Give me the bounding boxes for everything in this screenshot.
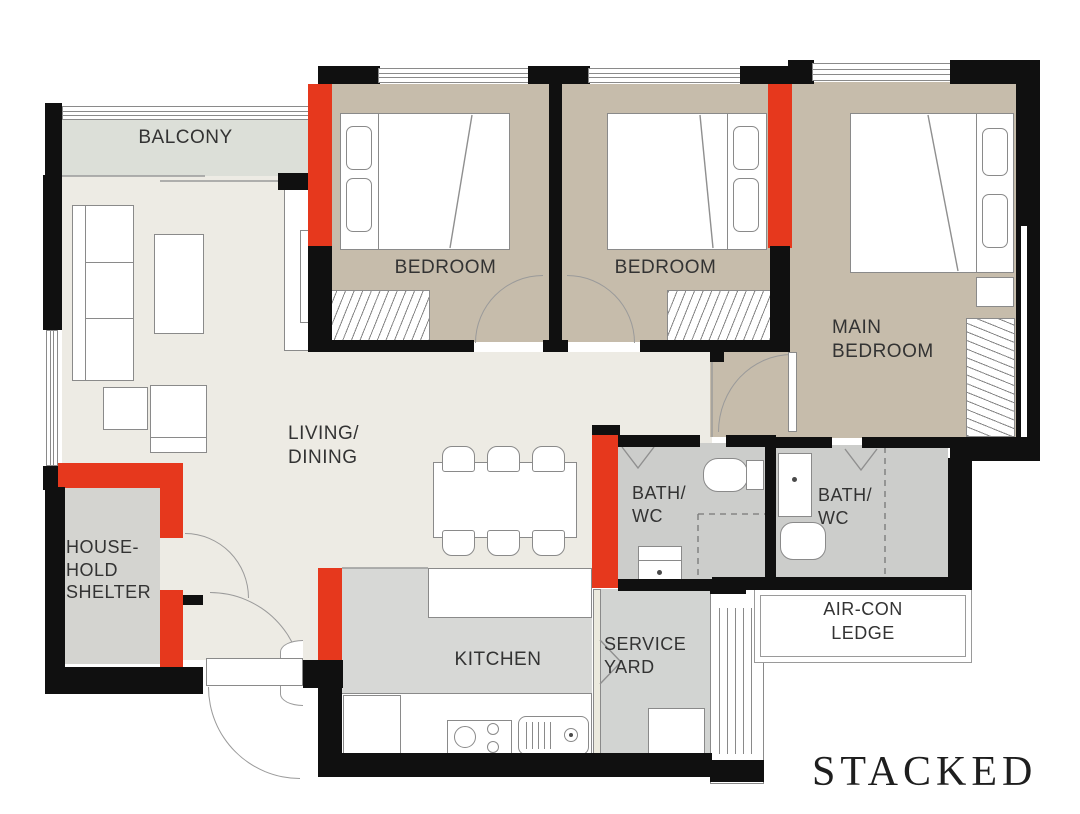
window [378,68,530,83]
wall-segment [528,66,590,84]
label-balcony: BALCONY [118,126,253,150]
pillow [346,126,372,170]
bed-mattress [850,113,978,273]
door-leaf-entrance [206,658,303,686]
pillow [733,178,759,232]
wall-segment [788,60,814,84]
stove-burner [487,723,499,735]
label-line: WC [632,505,686,528]
wardrobe [667,290,785,342]
label-line: MAIN [832,316,934,340]
stacked-logo: STACKED [812,748,1037,796]
wall-segment [308,246,332,352]
window [812,63,952,81]
wall-segment [618,579,714,591]
label-line: SERVICE [604,633,686,656]
label-bedroom-1: BEDROOM [378,256,513,280]
wall-segment [45,103,62,183]
wall-segment [303,660,343,688]
sofa-cushion-line [86,318,133,319]
label-main-bedroom: MAIN BEDROOM [832,316,934,365]
window-slit [1021,226,1027,438]
basin-tap-dot [792,477,797,482]
wardrobe [966,318,1015,437]
wall-segment [740,66,790,84]
wall-segment [710,760,764,782]
pillow [346,178,372,232]
label-bath-2: BATH/ WC [818,484,872,530]
window [46,330,58,466]
dining-table [433,462,577,538]
wall-segment [318,340,474,352]
label-line: WC [818,507,872,530]
washing-machine [648,708,705,755]
label-service-yard: SERVICE YARD [604,633,686,679]
label-line: HOLD [66,559,151,582]
kitchen-service-partition [593,589,601,754]
wardrobe [318,290,430,342]
kitchen-island-counter [428,568,592,618]
stove-burner [487,741,499,753]
wall-segment [43,175,62,330]
label-line: AIR-CON [754,597,972,621]
side-table [103,387,148,430]
pillow [982,128,1008,176]
floor-plan: BALCONY BEDROOM BEDROOM MAIN BEDROOM LIV… [0,0,1080,814]
label-line: BATH/ [818,484,872,507]
dining-chair [532,446,565,472]
window [588,68,742,83]
stove-burner [454,726,476,748]
label-bath-1: BATH/ WC [632,482,686,528]
reinforced-wall-red [308,84,332,248]
reinforced-wall-red [160,590,183,668]
wall-segment [318,753,712,777]
wall-segment [948,458,972,590]
bed-mattress [378,113,510,250]
dining-chair [487,446,520,472]
wall-segment [765,437,776,583]
fridge [343,695,401,754]
door-swing-arc-entrance-outer [208,687,300,779]
label-line: LEDGE [754,621,972,645]
coffee-table [154,234,204,334]
label-kitchen: KITCHEN [428,648,568,672]
pillow [733,126,759,170]
armchair-line [151,437,206,438]
toilet [703,458,748,492]
sofa-backrest-line [85,206,86,380]
wall-segment [712,577,952,590]
wall-segment [45,487,65,693]
label-household-shelter: HOUSE- HOLD SHELTER [66,536,151,604]
bed-mattress [607,113,729,250]
door-leaf-main-bedroom [788,352,797,432]
label-line: HOUSE- [66,536,151,559]
label-aircon-ledge: AIR-CON LEDGE [754,597,972,646]
wall-segment [183,595,203,605]
label-line: YARD [604,656,686,679]
window [62,106,310,120]
wall-segment [862,437,954,448]
bedside-bench [976,277,1014,307]
wall-segment [776,437,832,448]
wall-segment [543,340,568,352]
reinforced-wall-red [58,463,183,488]
label-line: DINING [288,446,359,470]
label-living-dining: LIVING/ DINING [288,422,359,471]
label-bedroom-2: BEDROOM [598,256,733,280]
wall-segment [770,246,790,352]
wall-segment [1016,60,1040,445]
armchair [150,385,207,453]
pillow [982,194,1008,248]
vanity-line [639,560,681,561]
vanity-cabinet [778,453,812,517]
wall-segment [45,667,203,694]
label-line: SHELTER [66,581,151,604]
reinforced-wall-red [768,84,792,248]
dining-chair [532,530,565,556]
sofa [72,205,134,381]
label-line: BEDROOM [832,340,934,364]
sofa-cushion-line [86,262,133,263]
dining-chair [487,530,520,556]
label-line: BATH/ [632,482,686,505]
basin-tap-dot [657,570,662,575]
dining-chair [442,530,475,556]
reinforced-wall-red [318,568,342,662]
wall-segment [710,583,746,594]
wall-segment [549,84,562,352]
room-living-dining [592,352,712,436]
sink-tap-dot [569,733,573,737]
wall-segment [318,66,380,84]
toilet-cistern [746,460,764,490]
reinforced-wall-red [592,435,618,588]
sink-drainer [526,722,556,749]
wall-segment [618,435,700,447]
wall-segment [710,340,724,362]
drying-rack-bars [719,608,755,754]
reinforced-wall-red [160,488,183,538]
label-line: LIVING/ [288,422,359,446]
dining-chair [442,446,475,472]
